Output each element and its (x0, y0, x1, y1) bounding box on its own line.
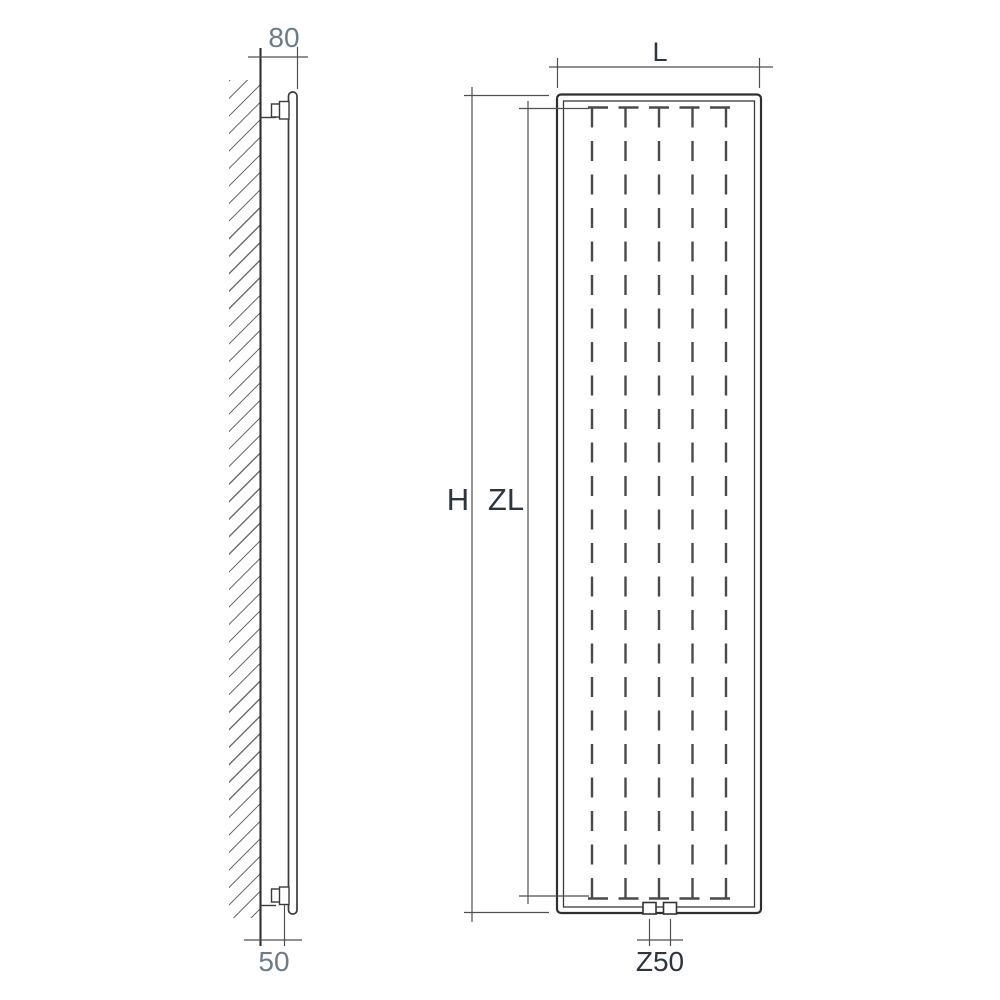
front-view: L H ZL Z50 (447, 37, 773, 977)
side-view: 80 50 (244, 22, 308, 977)
dim-80-label: 80 (268, 22, 299, 53)
dimension-wall-to-front: 80 (248, 22, 308, 89)
radiator-drawing-svg: 80 50 (0, 0, 1000, 1000)
convector-core (588, 108, 730, 899)
dim-Z50-label: Z50 (636, 946, 684, 977)
bracket-top-clamp (280, 102, 290, 120)
dim-L-label: L (652, 37, 667, 67)
connection-port-right (664, 903, 677, 915)
dimension-core-height: ZL (488, 101, 589, 904)
radiator-side-panel (289, 92, 298, 914)
technical-drawing-canvas: 80 50 (0, 0, 1000, 1000)
mounting-bracket-top (260, 102, 289, 120)
dimension-connection-spacing: Z50 (636, 919, 684, 977)
dimension-width: L (549, 37, 773, 88)
dim-H-label: H (447, 482, 469, 517)
dim-ZL-label: ZL (488, 482, 524, 517)
dim-50-label: 50 (258, 946, 289, 977)
bracket-bottom-clamp (280, 887, 290, 905)
dimension-wall-to-connection: 50 (244, 905, 302, 977)
mounting-bracket-bottom (260, 887, 289, 906)
connection-port-left (643, 903, 656, 915)
